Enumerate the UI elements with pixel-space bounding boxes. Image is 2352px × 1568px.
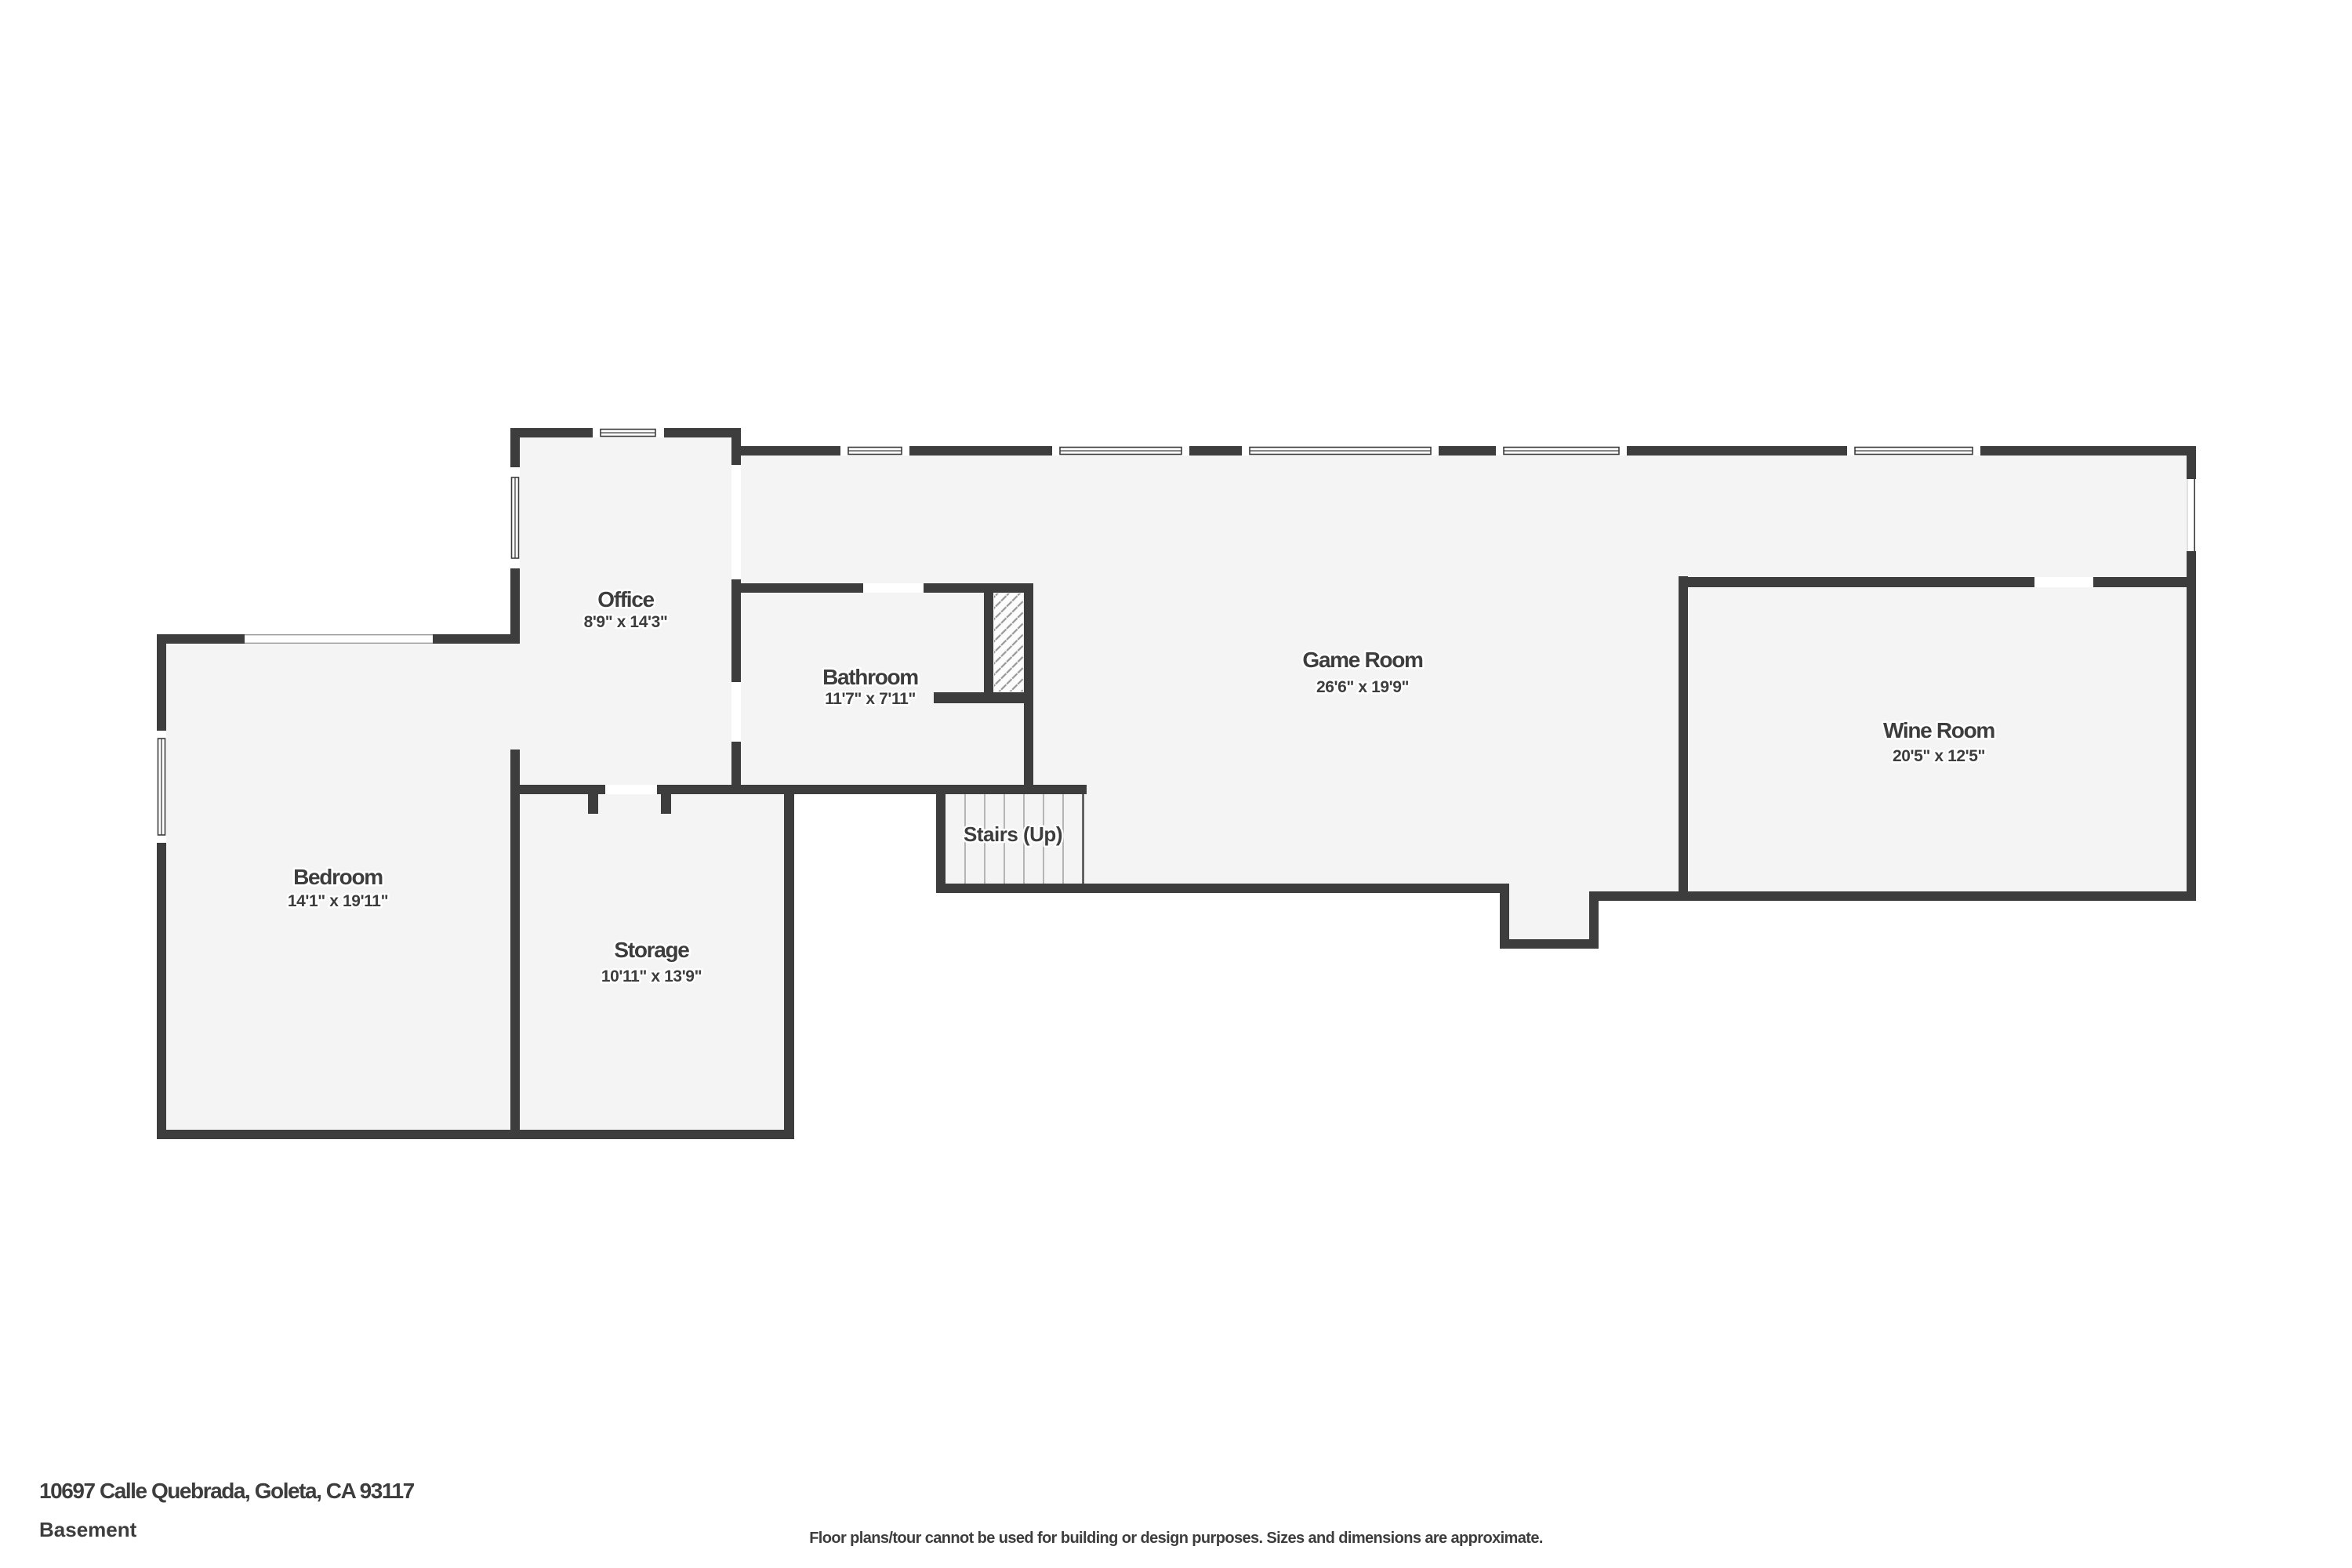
svg-text:Office: Office — [597, 587, 654, 612]
svg-text:10697 Calle Quebrada, Goleta,: 10697 Calle Quebrada, Goleta, CA 93117 — [39, 1479, 415, 1503]
svg-text:26'6" x 19'9": 26'6" x 19'9" — [1316, 678, 1409, 696]
svg-text:Stairs (Up): Stairs (Up) — [964, 822, 1062, 846]
svg-text:Wine Room: Wine Room — [1883, 718, 1994, 742]
svg-text:8'9" x 14'3": 8'9" x 14'3" — [584, 613, 668, 631]
svg-text:14'1" x 19'11": 14'1" x 19'11" — [288, 892, 388, 910]
svg-text:Bathroom: Bathroom — [822, 665, 918, 689]
svg-text:20'5" x 12'5": 20'5" x 12'5" — [1893, 747, 1985, 765]
svg-text:Game Room: Game Room — [1302, 648, 1423, 672]
svg-text:Bedroom: Bedroom — [293, 865, 383, 889]
svg-text:Storage: Storage — [614, 938, 689, 962]
svg-text:Basement: Basement — [39, 1518, 137, 1541]
svg-text:10'11" x 13'9": 10'11" x 13'9" — [601, 967, 702, 985]
svg-text:Floor plans/tour cannot be use: Floor plans/tour cannot be used for buil… — [809, 1530, 1543, 1547]
svg-text:11'7" x 7'11": 11'7" x 7'11" — [825, 690, 916, 708]
